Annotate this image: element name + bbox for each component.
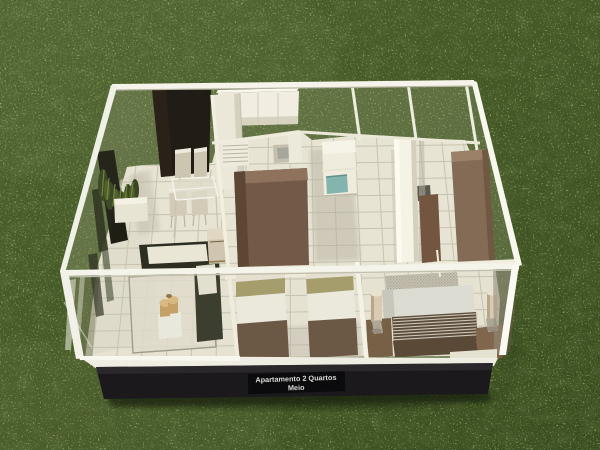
- svg-text:Meio: Meio: [288, 383, 305, 393]
